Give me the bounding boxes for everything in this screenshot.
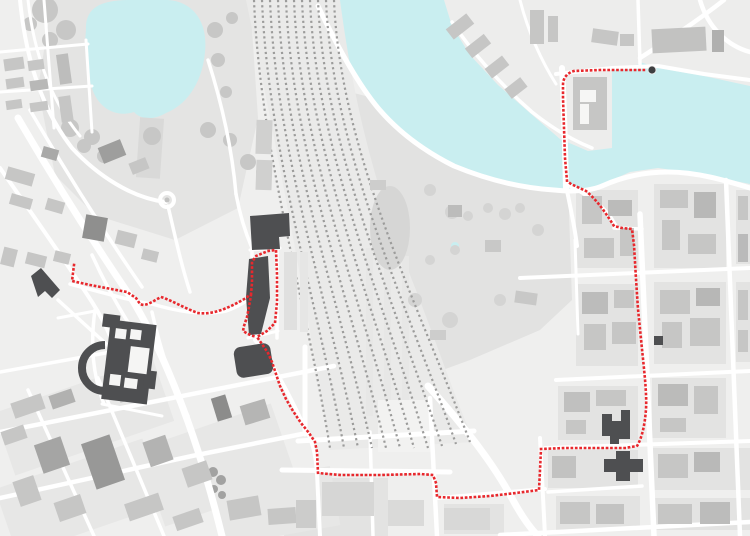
tree-cluster: [226, 12, 238, 24]
building: [322, 482, 374, 516]
building: [582, 292, 608, 314]
city-map-svg: [0, 0, 750, 536]
building: [267, 507, 296, 525]
building: [552, 456, 576, 478]
street: [282, 470, 450, 472]
building: [700, 502, 730, 524]
tree-cluster: [207, 22, 223, 38]
building: [566, 420, 586, 434]
city-block: [378, 400, 432, 452]
building: [608, 200, 632, 216]
tree-cluster: [499, 208, 511, 220]
building: [573, 77, 607, 130]
tree-cluster: [515, 203, 525, 213]
building: [712, 30, 724, 52]
building: [662, 220, 680, 250]
route-end-marker: [648, 66, 656, 74]
tree-cluster: [494, 294, 506, 306]
building: [548, 16, 558, 42]
building: [560, 502, 590, 524]
building: [694, 452, 720, 472]
building: [485, 240, 501, 252]
landmark-building: [233, 342, 274, 378]
tree-cluster: [211, 53, 225, 67]
building: [430, 330, 446, 340]
building: [738, 290, 748, 320]
map-viewport: [0, 0, 750, 536]
building: [690, 318, 720, 346]
building: [696, 288, 720, 306]
tree-cluster: [408, 293, 422, 307]
building: [694, 386, 718, 414]
building: [300, 252, 308, 332]
tree-cluster: [483, 203, 493, 213]
building: [584, 238, 614, 258]
building: [738, 234, 748, 262]
building: [658, 454, 688, 478]
landmark-building: [124, 378, 138, 390]
building: [370, 180, 386, 190]
building: [596, 390, 626, 406]
tree-cluster: [532, 224, 544, 236]
tree-cluster: [424, 184, 436, 196]
building: [255, 120, 272, 155]
building: [694, 192, 716, 218]
building: [738, 330, 748, 352]
building: [388, 500, 424, 526]
building: [651, 27, 706, 54]
building: [660, 290, 690, 314]
building: [612, 322, 636, 344]
building: [580, 90, 596, 102]
building: [660, 418, 686, 432]
building: [614, 290, 634, 308]
tree-cluster: [200, 122, 216, 138]
building: [448, 205, 462, 217]
landmark-building: [654, 336, 663, 345]
building: [255, 160, 272, 191]
tree-cluster: [240, 154, 256, 170]
building: [658, 504, 692, 524]
building: [564, 392, 590, 412]
tree-cluster: [56, 20, 76, 40]
building: [662, 322, 682, 348]
landmark-building: [102, 314, 120, 329]
street: [165, 198, 170, 203]
tree-cluster: [442, 312, 458, 328]
tree-cluster: [143, 127, 161, 145]
building: [580, 104, 589, 124]
building: [738, 196, 748, 220]
tree-cluster: [216, 475, 226, 485]
building: [660, 190, 688, 208]
street: [638, 0, 640, 64]
tree-cluster: [450, 245, 460, 255]
building: [582, 196, 602, 224]
landmark-building: [128, 346, 150, 374]
building: [82, 214, 108, 241]
building: [596, 504, 624, 524]
tree-cluster: [220, 86, 232, 98]
building: [530, 10, 544, 44]
building: [620, 34, 634, 46]
landmark-building: [130, 329, 142, 340]
building: [444, 508, 490, 530]
landmark-building: [115, 328, 127, 339]
building: [296, 500, 316, 528]
building: [584, 324, 606, 350]
tree-cluster: [463, 211, 473, 221]
tree-cluster: [425, 255, 435, 265]
tree-cluster: [218, 491, 226, 499]
landmark-building: [109, 374, 121, 386]
building: [658, 384, 688, 406]
building: [688, 234, 716, 254]
building: [284, 252, 297, 330]
